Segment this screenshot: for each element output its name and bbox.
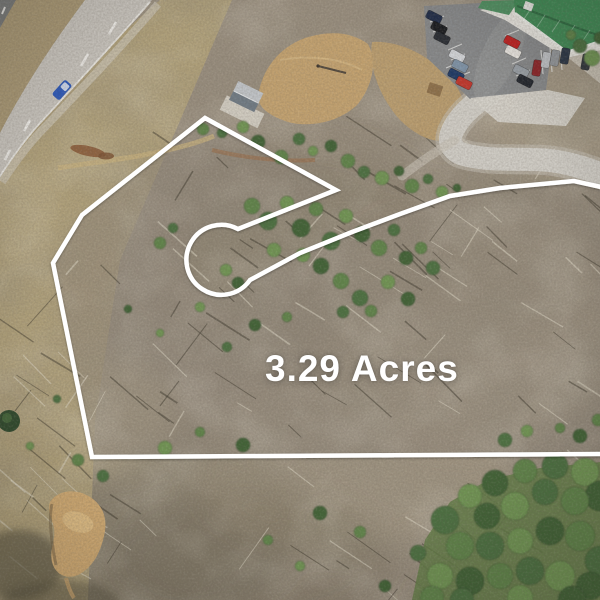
vignette [0, 0, 600, 600]
acreage-label: 3.29 Acres [265, 348, 459, 390]
photo-canvas [0, 0, 600, 600]
aerial-parcel-photo: 3.29 Acres [0, 0, 600, 600]
